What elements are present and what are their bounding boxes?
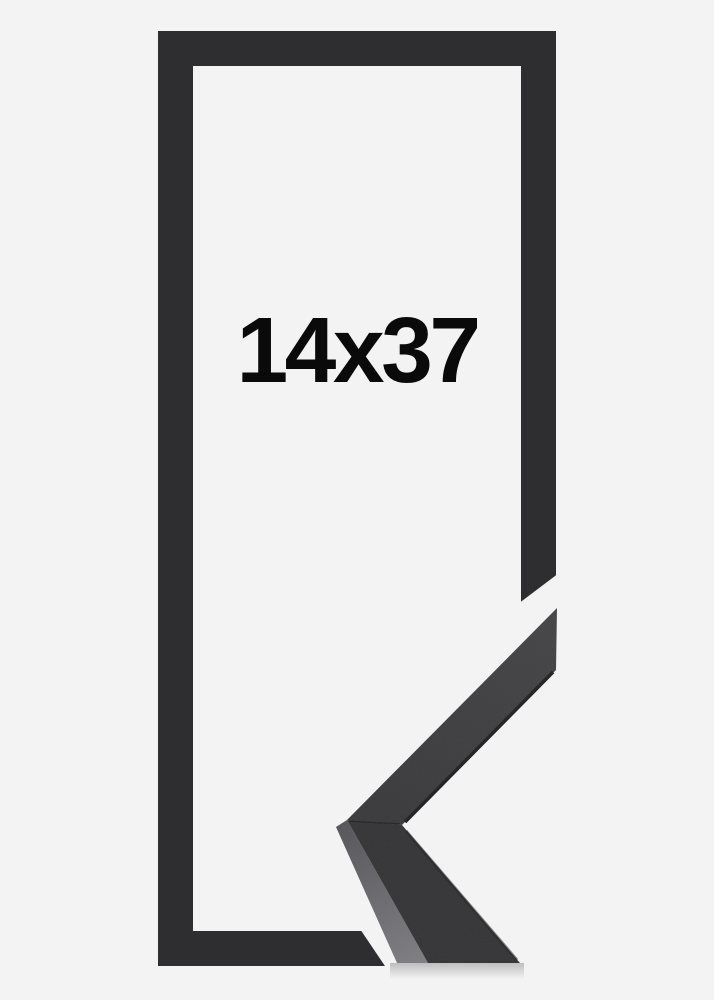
- frame-product-image: 14x37: [0, 0, 714, 1000]
- size-label: 14x37: [236, 298, 477, 402]
- sample-shadow: [390, 963, 524, 979]
- product-image-stage: 14x37: [0, 0, 714, 1000]
